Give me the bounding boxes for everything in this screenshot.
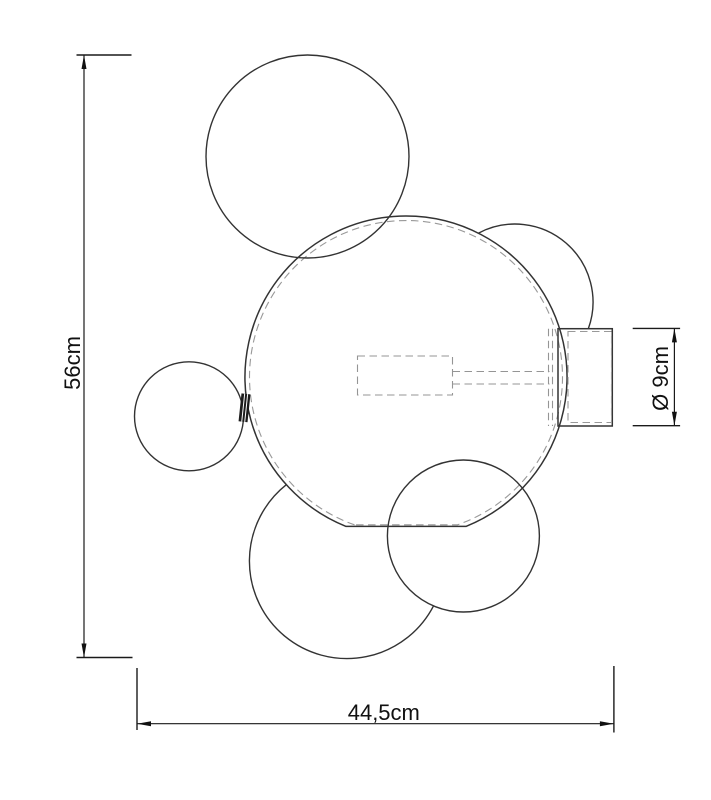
svg-text:56cm: 56cm [60,336,85,390]
svg-text:Ø 9cm: Ø 9cm [648,346,673,411]
svg-text:44,5cm: 44,5cm [348,700,420,725]
